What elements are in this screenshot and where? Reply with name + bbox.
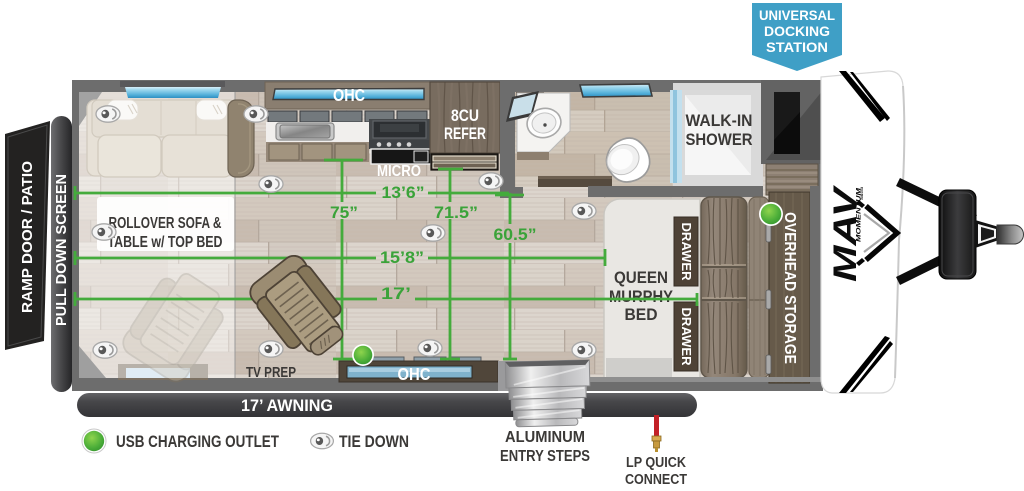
svg-text:8CU: 8CU [451,106,479,125]
svg-text:60.5”: 60.5” [494,226,537,244]
svg-text:OHC: OHC [333,85,365,105]
svg-text:17’: 17’ [381,285,411,303]
svg-text:GRAND DESIGN: GRAND DESIGN [860,187,864,200]
svg-text:CONNECT: CONNECT [625,472,687,488]
svg-text:USB CHARGING OUTLET: USB CHARGING OUTLET [116,433,279,451]
svg-text:17’ AWNING: 17’ AWNING [241,397,333,415]
svg-text:ALUMINUM: ALUMINUM [505,429,585,446]
svg-text:RAMP DOOR / PATIO: RAMP DOOR / PATIO [20,161,36,313]
svg-text:STATION: STATION [766,39,828,55]
svg-text:75”: 75” [330,204,358,222]
svg-text:BED: BED [625,306,658,324]
svg-text:71.5”: 71.5” [434,204,478,222]
svg-text:DOCKING: DOCKING [764,23,830,39]
svg-text:DRAWER: DRAWER [679,308,693,366]
svg-text:WALK-IN: WALK-IN [686,111,753,130]
svg-text:13’6”: 13’6” [382,184,425,202]
svg-text:TV PREP: TV PREP [246,364,296,381]
svg-text:TABLE w/ TOP BED: TABLE w/ TOP BED [108,234,223,251]
svg-text:UNIVERSAL: UNIVERSAL [759,7,835,23]
svg-text:TIE DOWN: TIE DOWN [339,433,409,451]
svg-text:SHOWER: SHOWER [686,130,753,149]
svg-text:LP QUICK: LP QUICK [626,455,686,471]
svg-text:15’8”: 15’8” [380,249,424,267]
svg-text:QUEEN: QUEEN [614,269,668,287]
svg-text:MICRO: MICRO [377,163,421,180]
svg-text:PULL DOWN SCREEN: PULL DOWN SCREEN [54,174,70,326]
svg-text:OHC: OHC [398,364,431,384]
svg-text:OVERHEAD STORAGE: OVERHEAD STORAGE [781,212,798,364]
svg-text:ROLLOVER SOFA &: ROLLOVER SOFA & [109,215,222,232]
svg-text:DRAWER: DRAWER [679,223,693,281]
svg-text:ENTRY STEPS: ENTRY STEPS [500,448,590,465]
svg-text:MURPHY: MURPHY [609,288,673,306]
svg-text:REFER: REFER [444,124,486,143]
